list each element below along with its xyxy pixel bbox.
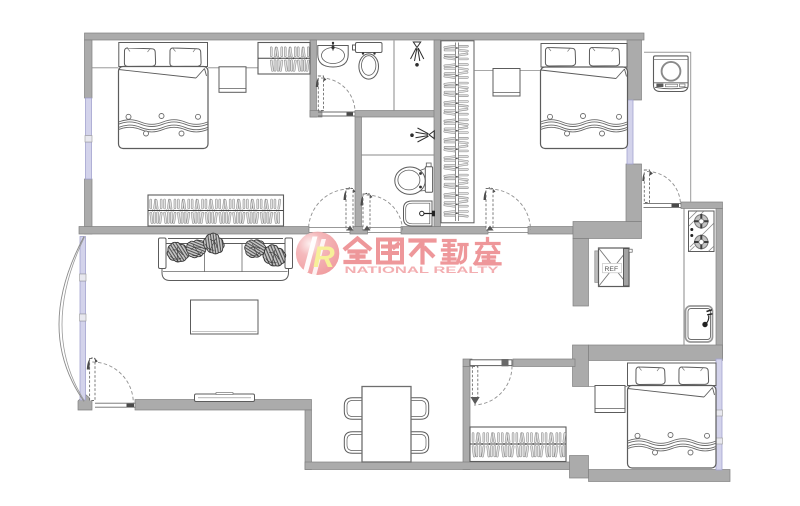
- svg-text:NATIONAL REALTY: NATIONAL REALTY: [345, 265, 499, 275]
- svg-text:REF: REF: [605, 266, 619, 273]
- svg-text:R: R: [313, 241, 335, 274]
